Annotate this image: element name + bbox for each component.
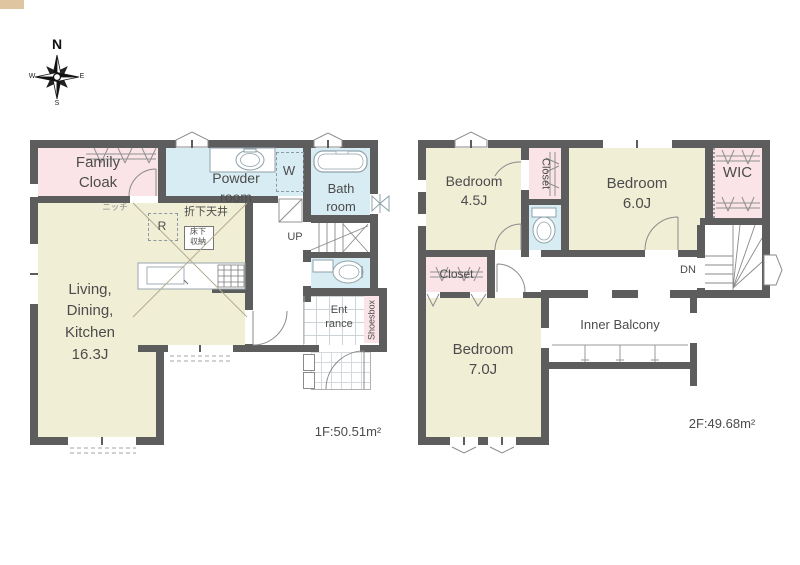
powder-room-label: Powder room [196, 169, 276, 207]
stairs-up-label: UP [283, 230, 307, 244]
entrance-label: Ent rance [311, 304, 367, 332]
dropped-ceiling-label: 折下天井 [178, 205, 234, 219]
floor-plan-canvas: N E S W Family Cloak Powder room W Bath … [0, 0, 800, 565]
stairs-up-lines [311, 223, 368, 252]
bedroom-70-label: Bedroom 7.0J [428, 338, 538, 382]
eave-lines [70, 356, 233, 453]
bedroom-45-label: Bedroom 4.5J [430, 170, 518, 212]
bedroom-60-label: Bedroom 6.0J [570, 172, 704, 216]
refrigerator-label: R [148, 213, 176, 239]
toilet-icon [313, 260, 363, 283]
stair-window-icon [764, 255, 782, 285]
wic-label: WIC [713, 164, 762, 182]
casement-window-mark [452, 447, 514, 453]
inner-balcony-label: Inner Balcony [552, 317, 688, 333]
bath-room-label: Bath room [316, 181, 366, 215]
compass-south-label: S [51, 98, 63, 110]
bifold-door-mark [427, 294, 486, 306]
floor1-area-label: 1F:50.51m² [300, 424, 396, 439]
bath-window-icon [372, 194, 389, 213]
balcony-railing [552, 345, 688, 362]
stairs-down-lines [705, 225, 762, 290]
compass-north-label: N [48, 36, 66, 52]
compass-west-label: W [26, 71, 38, 83]
washer-label: W [276, 152, 302, 190]
closet-north-label: Closet [529, 150, 561, 198]
ldk-label: Living, Dining, Kitchen 16.3J [36, 276, 144, 368]
vent-hood-icon [176, 132, 487, 147]
family-cloak-label: Family Cloak [46, 153, 150, 193]
compass-east-label: E [76, 71, 88, 83]
closet-west-label: Closet [426, 266, 487, 282]
shoesbox-label: Shoesbox [364, 296, 379, 343]
stove-icon [218, 265, 244, 287]
bathtub-icon [314, 151, 367, 172]
compass-rose-icon [35, 55, 79, 99]
niche-label: ニッチ [98, 202, 132, 213]
underfloor-storage-label: 床下 収納 [184, 226, 212, 248]
stairs-down-label: DN [676, 264, 700, 277]
floor2-area-label: 2F:49.68m² [672, 416, 772, 431]
toilet-icon [532, 208, 556, 243]
